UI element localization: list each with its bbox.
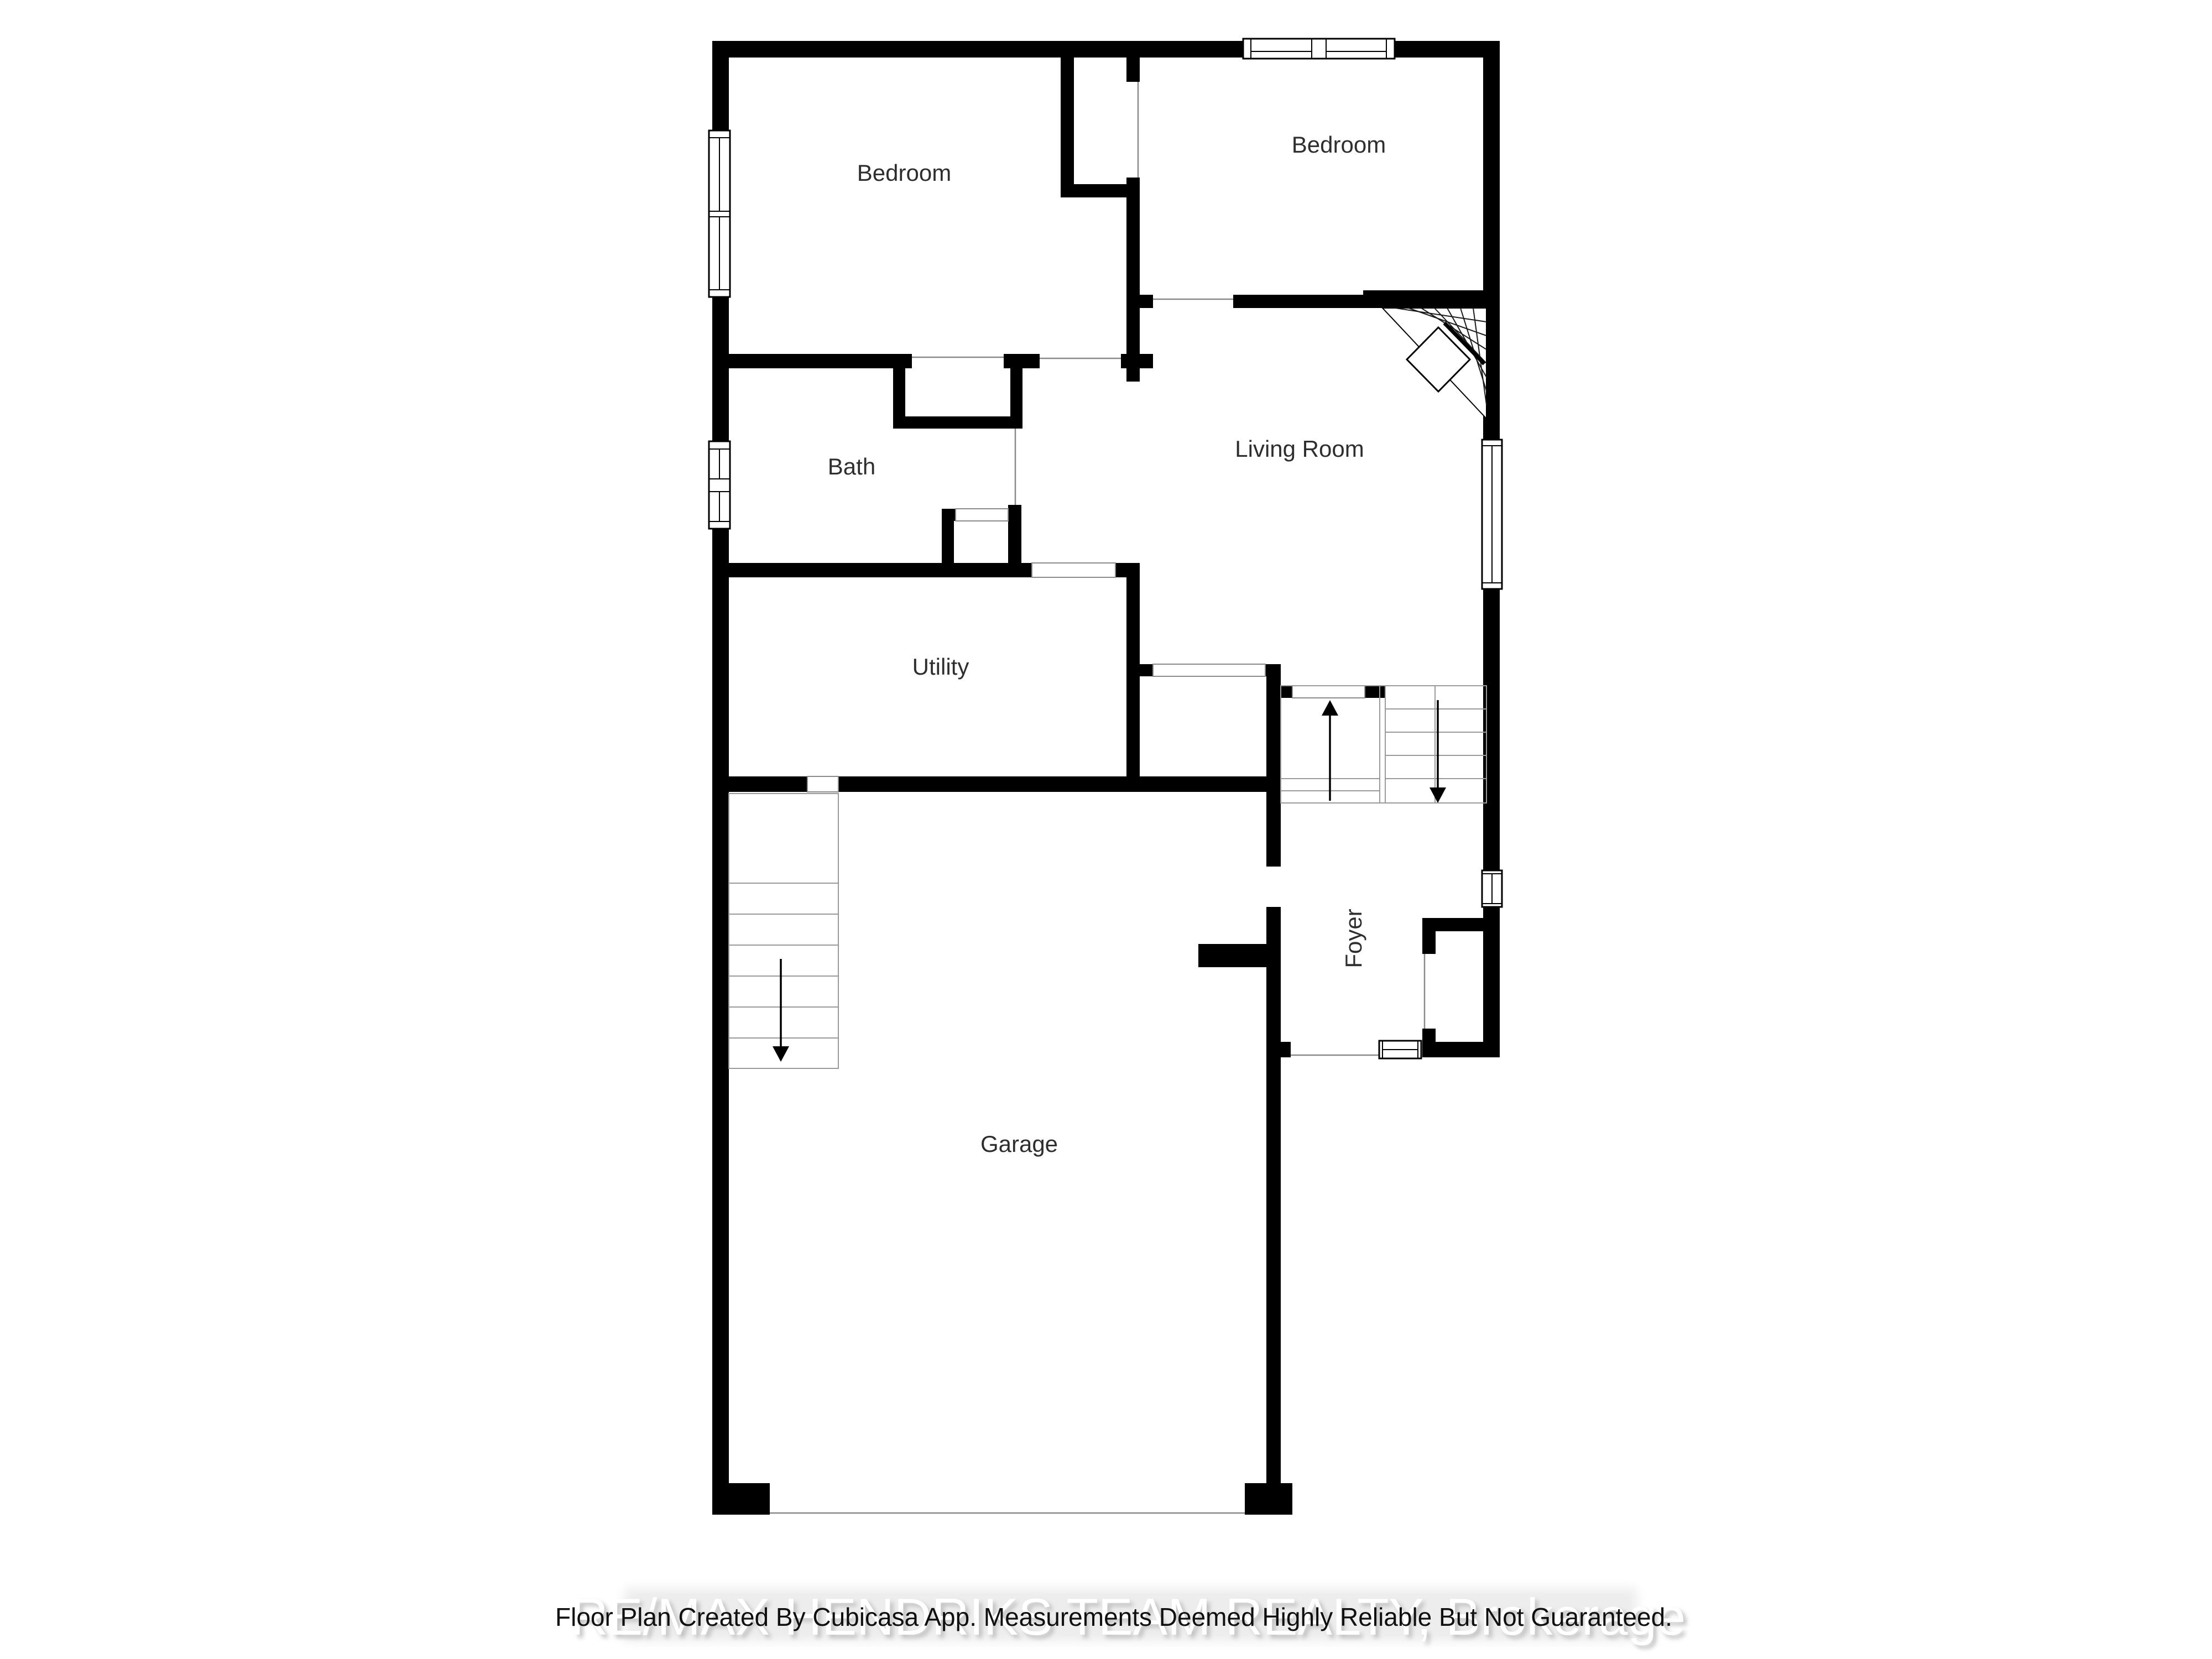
stairs-down-arrow-icon <box>1430 700 1446 803</box>
window-icon <box>1482 440 1502 589</box>
window-icon <box>709 131 730 297</box>
room-labels: Bedroom Bedroom Bath Living Room Utility… <box>828 132 1386 1157</box>
room-label-foyer: Foyer <box>1340 909 1366 968</box>
room-label-bath: Bath <box>828 453 875 479</box>
window-icon <box>709 441 730 529</box>
room-label-bedroom-right: Bedroom <box>1292 132 1386 158</box>
footer-disclaimer: Floor Plan Created By Cubicasa App. Meas… <box>555 1603 1672 1631</box>
window-icon <box>1243 39 1395 59</box>
winder-stairs <box>1383 308 1486 419</box>
window-icon <box>1379 1041 1421 1058</box>
room-label-garage: Garage <box>980 1131 1058 1157</box>
basement-stairs <box>729 794 838 1068</box>
footer: RE/MAX HENDRIKS TEAM REALTY, Brokerage R… <box>555 1588 1689 1649</box>
stairs-down-arrow-icon <box>773 959 789 1062</box>
main-stairs <box>1281 686 1486 803</box>
floorplan-canvas: Bedroom Bedroom Bath Living Room Utility… <box>0 0 2212 1659</box>
room-label-utility: Utility <box>912 654 969 680</box>
room-label-living-room: Living Room <box>1235 436 1364 462</box>
floorplan-page: Bedroom Bedroom Bath Living Room Utility… <box>0 0 2212 1659</box>
stairs-up-arrow-icon <box>1322 700 1338 801</box>
room-label-bedroom-left: Bedroom <box>857 160 951 186</box>
window-icon <box>1482 870 1502 907</box>
